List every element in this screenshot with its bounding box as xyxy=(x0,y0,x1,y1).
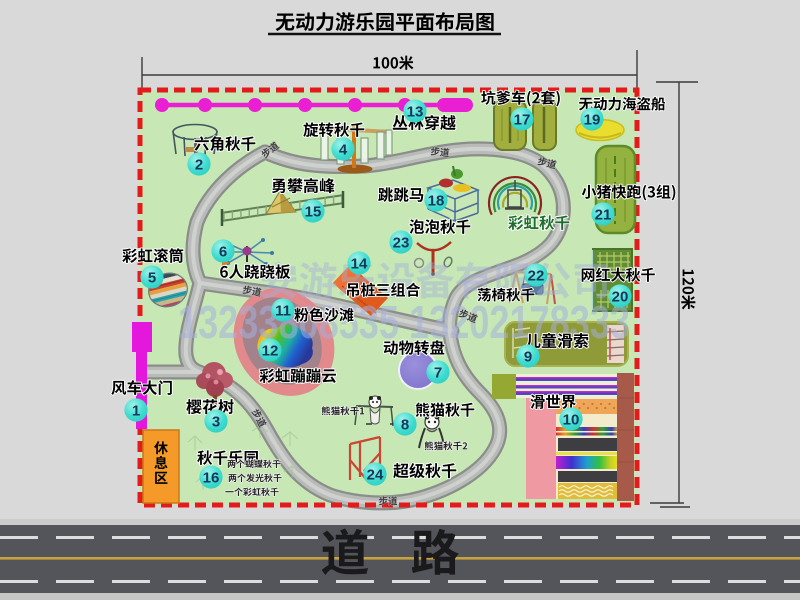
svg-text:16: 16 xyxy=(203,469,220,486)
svg-text:2: 2 xyxy=(195,156,203,173)
svg-text:10: 10 xyxy=(563,411,580,428)
svg-text:12: 12 xyxy=(262,342,279,359)
svg-text:11: 11 xyxy=(275,302,291,319)
svg-text:19: 19 xyxy=(584,111,601,128)
svg-text:23: 23 xyxy=(393,234,410,251)
svg-text:5: 5 xyxy=(148,269,156,286)
svg-text:15: 15 xyxy=(305,203,322,220)
svg-text:20: 20 xyxy=(612,288,629,305)
svg-text:9: 9 xyxy=(524,348,532,365)
svg-text:7: 7 xyxy=(434,364,442,381)
svg-text:17: 17 xyxy=(514,111,531,128)
svg-text:1: 1 xyxy=(132,402,140,419)
svg-text:14: 14 xyxy=(351,255,368,272)
svg-text:22: 22 xyxy=(528,267,545,284)
svg-text:18: 18 xyxy=(428,192,445,209)
svg-text:6: 6 xyxy=(219,243,227,260)
svg-text:13: 13 xyxy=(407,103,424,120)
svg-text:4: 4 xyxy=(339,141,348,158)
svg-text:8: 8 xyxy=(401,416,409,433)
svg-text:3: 3 xyxy=(212,413,220,430)
svg-text:21: 21 xyxy=(595,206,612,223)
svg-text:24: 24 xyxy=(367,466,384,483)
